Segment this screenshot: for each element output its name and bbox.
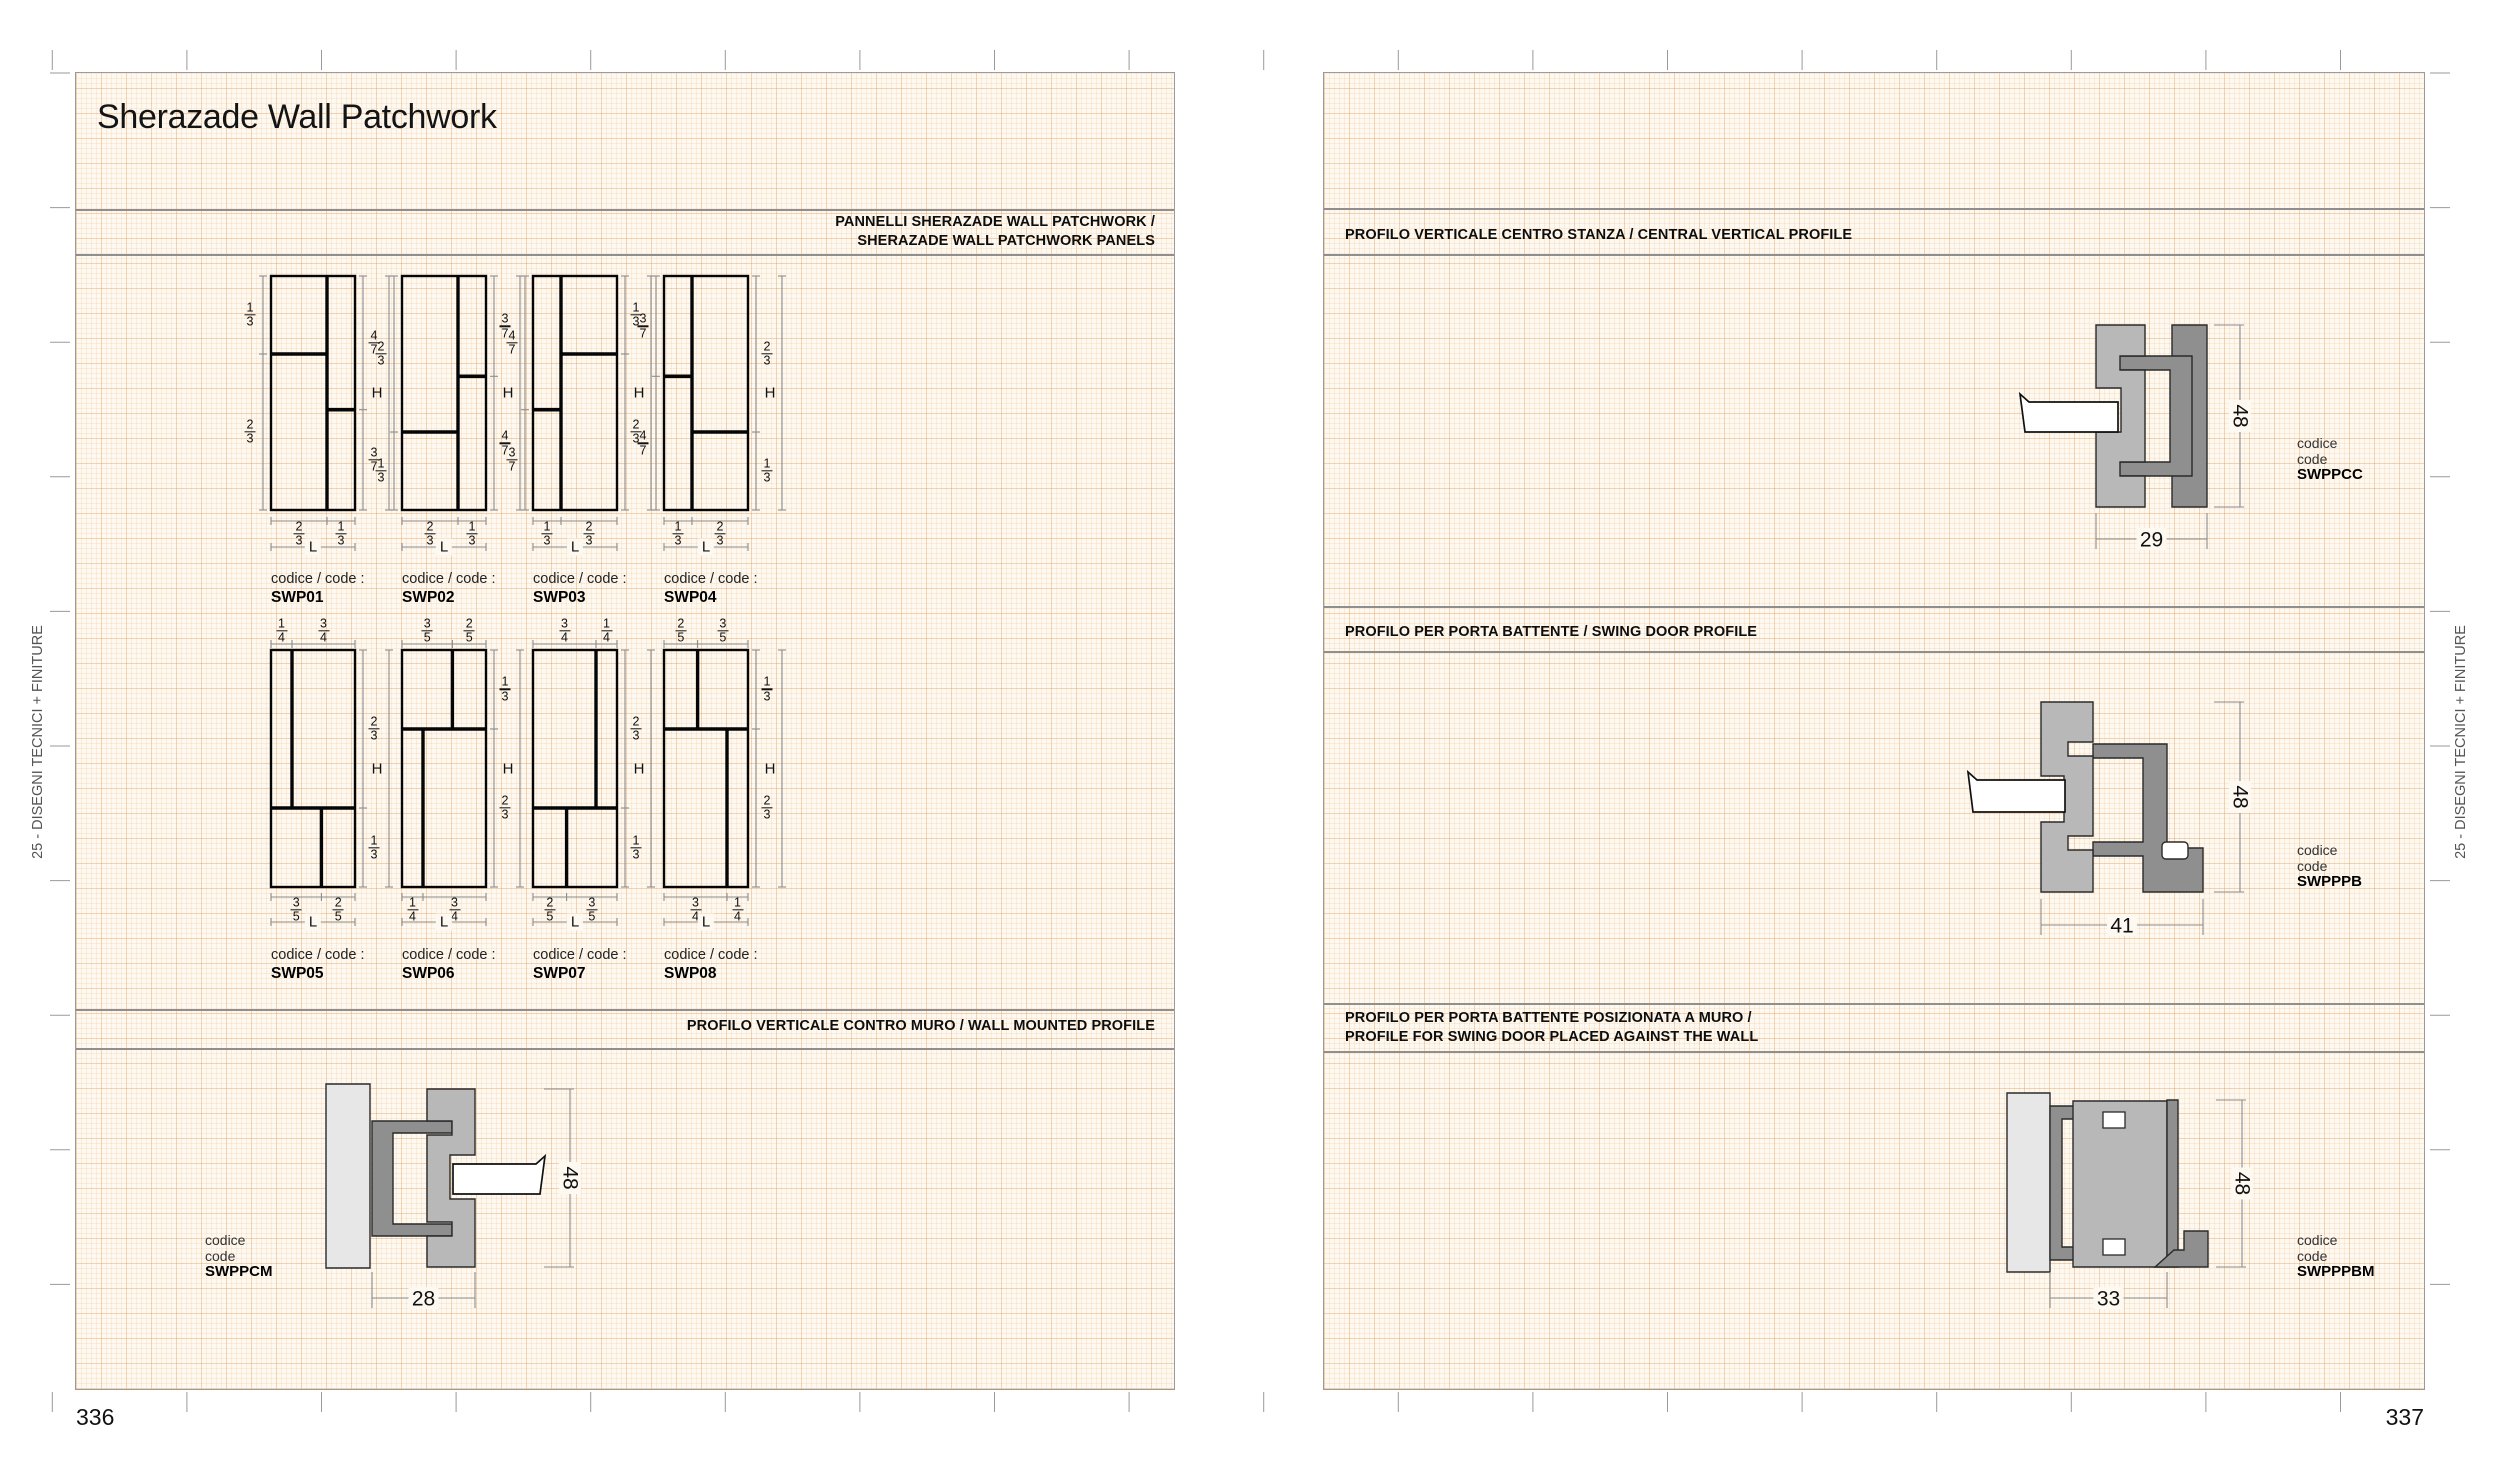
codice-block-SWPPPBM: codicecodeSWPPPBM bbox=[2297, 1233, 2375, 1280]
panel-code-value: SWP02 bbox=[402, 589, 496, 607]
drawing-labels-layer: 132347372313HLcodice / code :SWP01231337… bbox=[0, 0, 2500, 1480]
fraction-dimension-label: 13 bbox=[762, 677, 773, 702]
code-prefix: codice / code : bbox=[402, 946, 496, 964]
panel-code-SWP02: codice / code :SWP02 bbox=[402, 570, 496, 607]
codice-label-line: codice bbox=[2297, 843, 2362, 859]
fraction-dimension-label: 23 bbox=[376, 341, 387, 366]
fraction-dimension-label: 37 bbox=[507, 447, 518, 472]
section-heading-line: PROFILO PER PORTA BATTENTE POSIZIONATA A… bbox=[1345, 1009, 1758, 1028]
panel-code-value: SWP07 bbox=[533, 965, 627, 983]
code-prefix: codice / code : bbox=[533, 946, 627, 964]
fraction-dimension-label: 35 bbox=[586, 897, 597, 922]
page-number-right: 337 bbox=[2386, 1404, 2424, 1431]
height-dim-label: H bbox=[503, 760, 514, 777]
fraction-dimension-label: 13 bbox=[336, 521, 347, 546]
panel-code-value: SWP04 bbox=[664, 589, 758, 607]
fraction-dimension-label: 13 bbox=[672, 521, 683, 546]
profile-code-value: SWPPPB bbox=[2297, 874, 2362, 890]
fraction-dimension-label: 35 bbox=[291, 897, 302, 922]
fraction-dimension-label: 23 bbox=[369, 716, 380, 741]
fraction-dimension-label: 23 bbox=[762, 795, 773, 820]
length-dim-label: L bbox=[436, 914, 452, 931]
section-heading-line: PROFILO VERTICALE CONTRO MURO / WALL MOU… bbox=[687, 1017, 1155, 1036]
code-prefix: codice / code : bbox=[402, 570, 496, 588]
fraction-dimension-label: 14 bbox=[601, 618, 612, 643]
section-heading-line: PROFILO VERTICALE CENTRO STANZA / CENTRA… bbox=[1345, 226, 1852, 245]
fraction-dimension-label: 47 bbox=[507, 330, 518, 355]
code-prefix: codice / code : bbox=[271, 946, 365, 964]
panel-code-value: SWP03 bbox=[533, 589, 627, 607]
margin-label-left: 25 - DISEGNI TECNICI + FINITURE bbox=[30, 625, 46, 859]
panel-code-SWP03: codice / code :SWP03 bbox=[533, 570, 627, 607]
length-dim-label: L bbox=[698, 539, 714, 556]
fraction-dimension-label: 14 bbox=[732, 897, 743, 922]
fraction-dimension-label: 23 bbox=[425, 521, 436, 546]
fraction-dimension-label: 13 bbox=[467, 521, 478, 546]
code-prefix: codice / code : bbox=[664, 570, 758, 588]
code-prefix: codice / code : bbox=[271, 570, 365, 588]
length-dim-label: L bbox=[305, 539, 321, 556]
fraction-dimension-label: 25 bbox=[464, 618, 475, 643]
fraction-dimension-label: 47 bbox=[638, 430, 649, 455]
section-heading-wall-mounted-profile: PROFILO VERTICALE CONTRO MURO / WALL MOU… bbox=[687, 1017, 1155, 1036]
panel-code-SWP04: codice / code :SWP04 bbox=[664, 570, 758, 607]
fraction-dimension-label: 34 bbox=[559, 618, 570, 643]
codice-block-SWPPPB: codicecodeSWPPPB bbox=[2297, 843, 2362, 890]
fraction-dimension-label: 13 bbox=[762, 458, 773, 483]
panel-code-SWP01: codice / code :SWP01 bbox=[271, 570, 365, 607]
fraction-dimension-label: 25 bbox=[333, 897, 344, 922]
section-heading-line: PROFILO PER PORTA BATTENTE / SWING DOOR … bbox=[1345, 623, 1757, 642]
catalog-spread: 4828482948414833 132347372313HLcodice / … bbox=[0, 0, 2500, 1480]
panel-code-value: SWP08 bbox=[664, 965, 758, 983]
fraction-dimension-label: 34 bbox=[318, 618, 329, 643]
length-dim-label: L bbox=[567, 914, 583, 931]
fraction-dimension-label: 13 bbox=[631, 835, 642, 860]
height-dim-label: H bbox=[372, 385, 383, 402]
codice-label-line: code bbox=[2297, 859, 2362, 875]
codice-label-line: code bbox=[205, 1249, 273, 1265]
fraction-dimension-label: 25 bbox=[675, 618, 686, 643]
height-dim-label: H bbox=[634, 385, 645, 402]
fraction-dimension-label: 14 bbox=[276, 618, 287, 643]
length-dim-label: L bbox=[436, 539, 452, 556]
fraction-dimension-label: 13 bbox=[376, 458, 387, 483]
section-heading-swing-door-profile: PROFILO PER PORTA BATTENTE / SWING DOOR … bbox=[1345, 623, 1757, 642]
fraction-dimension-label: 13 bbox=[500, 677, 511, 702]
codice-label-line: codice bbox=[205, 1233, 273, 1249]
height-dim-label: H bbox=[372, 760, 383, 777]
panel-code-value: SWP06 bbox=[402, 965, 496, 983]
section-heading-line: SHERAZADE WALL PATCHWORK PANELS bbox=[835, 232, 1155, 251]
codice-block-SWPPCC: codicecodeSWPPCC bbox=[2297, 436, 2363, 483]
fraction-dimension-label: 25 bbox=[544, 897, 555, 922]
fraction-dimension-label: 23 bbox=[631, 716, 642, 741]
length-dim-label: L bbox=[698, 914, 714, 931]
code-prefix: codice / code : bbox=[533, 570, 627, 588]
section-heading-swing-door-wall-profile: PROFILO PER PORTA BATTENTE POSIZIONATA A… bbox=[1345, 1009, 1758, 1047]
codice-label-line: code bbox=[2297, 1249, 2375, 1265]
panel-code-SWP07: codice / code :SWP07 bbox=[533, 946, 627, 983]
fraction-dimension-label: 13 bbox=[541, 521, 552, 546]
fraction-dimension-label: 13 bbox=[245, 302, 256, 327]
fraction-dimension-label: 23 bbox=[714, 521, 725, 546]
panel-code-SWP05: codice / code :SWP05 bbox=[271, 946, 365, 983]
codice-label-line: codice bbox=[2297, 436, 2363, 452]
profile-code-value: SWPPPBM bbox=[2297, 1264, 2375, 1280]
height-dim-label: H bbox=[765, 760, 776, 777]
codice-block-SWPPCM: codicecodeSWPPCM bbox=[205, 1233, 273, 1280]
panel-code-value: SWP05 bbox=[271, 965, 365, 983]
section-heading-line: PANNELLI SHERAZADE WALL PATCHWORK / bbox=[835, 213, 1155, 232]
margin-label-right: 25 - DISEGNI TECNICI + FINITURE bbox=[2453, 625, 2469, 859]
height-dim-label: H bbox=[765, 385, 776, 402]
section-heading-central-vertical-profile: PROFILO VERTICALE CENTRO STANZA / CENTRA… bbox=[1345, 226, 1852, 245]
panel-code-SWP06: codice / code :SWP06 bbox=[402, 946, 496, 983]
fraction-dimension-label: 14 bbox=[407, 897, 418, 922]
fraction-dimension-label: 23 bbox=[500, 795, 511, 820]
height-dim-label: H bbox=[634, 760, 645, 777]
fraction-dimension-label: 23 bbox=[294, 521, 305, 546]
codice-label-line: codice bbox=[2297, 1233, 2375, 1249]
section-heading-panels: PANNELLI SHERAZADE WALL PATCHWORK / SHER… bbox=[835, 213, 1155, 251]
fraction-dimension-label: 35 bbox=[422, 618, 433, 643]
code-prefix: codice / code : bbox=[664, 946, 758, 964]
section-heading-line: PROFILE FOR SWING DOOR PLACED AGAINST TH… bbox=[1345, 1028, 1758, 1047]
page-title: Sherazade Wall Patchwork bbox=[97, 98, 497, 137]
page-number-left: 336 bbox=[76, 1404, 114, 1431]
height-dim-label: H bbox=[503, 385, 514, 402]
fraction-dimension-label: 37 bbox=[638, 313, 649, 338]
panel-code-SWP08: codice / code :SWP08 bbox=[664, 946, 758, 983]
fraction-dimension-label: 23 bbox=[762, 341, 773, 366]
panel-code-value: SWP01 bbox=[271, 589, 365, 607]
profile-code-value: SWPPCM bbox=[205, 1264, 273, 1280]
fraction-dimension-label: 23 bbox=[583, 521, 594, 546]
fraction-dimension-label: 35 bbox=[717, 618, 728, 643]
length-dim-label: L bbox=[305, 914, 321, 931]
length-dim-label: L bbox=[567, 539, 583, 556]
fraction-dimension-label: 23 bbox=[245, 419, 256, 444]
profile-code-value: SWPPCC bbox=[2297, 467, 2363, 483]
codice-label-line: code bbox=[2297, 452, 2363, 468]
fraction-dimension-label: 13 bbox=[369, 835, 380, 860]
